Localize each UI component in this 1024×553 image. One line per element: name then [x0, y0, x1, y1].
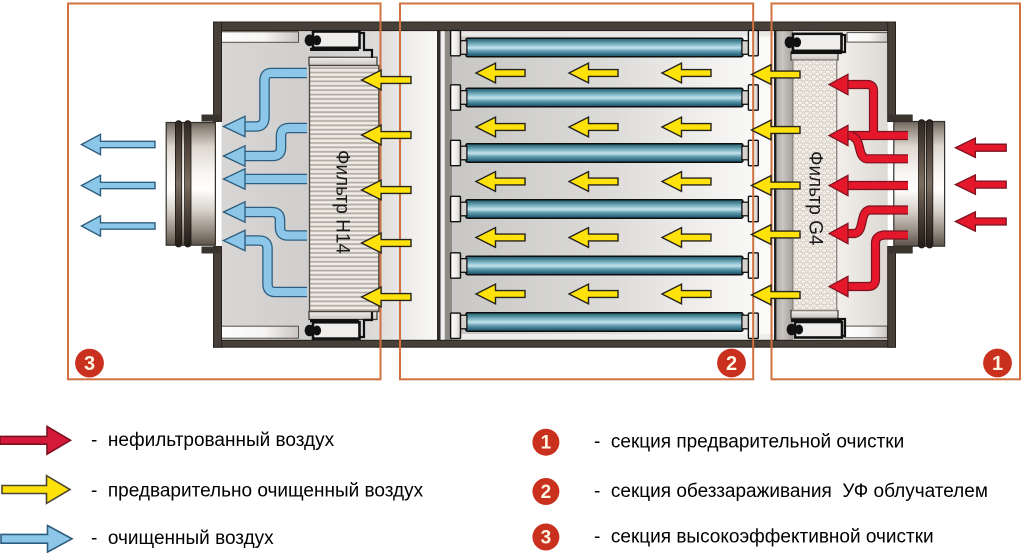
- svg-text:2: 2: [541, 482, 552, 503]
- svg-text:1: 1: [992, 353, 1003, 375]
- svg-text:- секция обеззараживания УФ: - секция обеззараживания УФ облучателем: [594, 481, 988, 502]
- svg-text:- нефильтрованный воздух: - нефильтрованный воздух: [91, 430, 335, 451]
- svg-text:- секция предварительной очис: - секция предварительной очистки: [594, 432, 904, 453]
- svg-text:3: 3: [541, 528, 552, 549]
- svg-text:- очищенный воздух: - очищенный воздух: [91, 528, 274, 549]
- svg-text:2: 2: [726, 353, 737, 375]
- svg-text:- предварительно очищенный во: - предварительно очищенный воздух: [91, 481, 424, 502]
- svg-text:Фильтр G4: Фильтр G4: [805, 151, 826, 246]
- svg-text:- секция высокоэффективной оч: - секция высокоэффективной очистки: [594, 527, 934, 548]
- svg-text:3: 3: [84, 353, 95, 375]
- svg-text:Фильтр Н14: Фильтр Н14: [332, 150, 353, 254]
- svg-text:1: 1: [541, 433, 552, 454]
